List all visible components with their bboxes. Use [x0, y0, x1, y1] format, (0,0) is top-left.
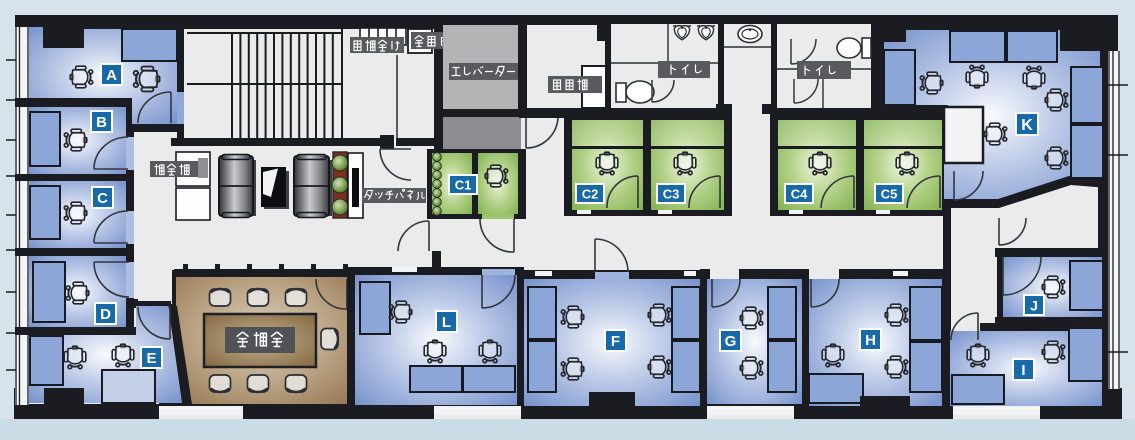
svg-text:D: D	[100, 306, 111, 323]
svg-text:I: I	[1021, 362, 1025, 379]
svg-text:K: K	[1021, 117, 1033, 134]
svg-text:B: B	[96, 114, 107, 131]
svg-text:C1: C1	[455, 178, 472, 193]
svg-text:H: H	[865, 332, 876, 349]
svg-text:G: G	[725, 333, 737, 350]
svg-text:A: A	[106, 67, 117, 84]
svg-text:L: L	[442, 314, 451, 331]
svg-text:C3: C3	[663, 187, 680, 202]
svg-text:C5: C5	[881, 187, 898, 202]
svg-text:F: F	[611, 333, 620, 350]
svg-text:C: C	[97, 190, 108, 207]
svg-text:E: E	[146, 350, 156, 367]
svg-text:C4: C4	[791, 187, 808, 202]
svg-text:J: J	[1030, 298, 1038, 314]
svg-text:C2: C2	[582, 187, 599, 202]
